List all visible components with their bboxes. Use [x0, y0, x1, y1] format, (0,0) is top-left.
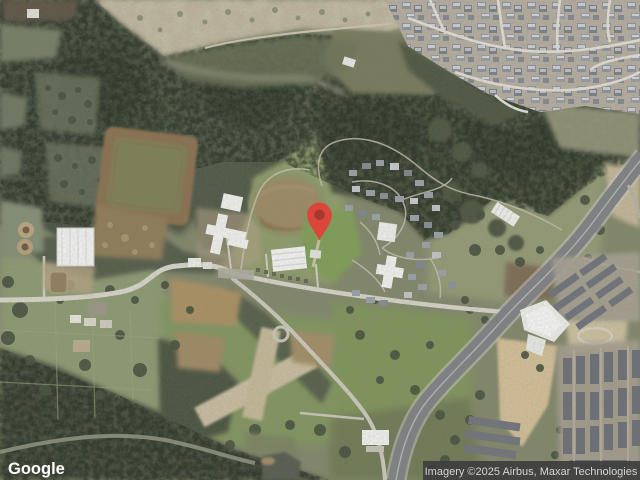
svg-text:Google: Google [8, 460, 65, 478]
svg-text:Imagery ©2025 Airbus, Maxar Te: Imagery ©2025 Airbus, Maxar Technologies [425, 466, 638, 478]
